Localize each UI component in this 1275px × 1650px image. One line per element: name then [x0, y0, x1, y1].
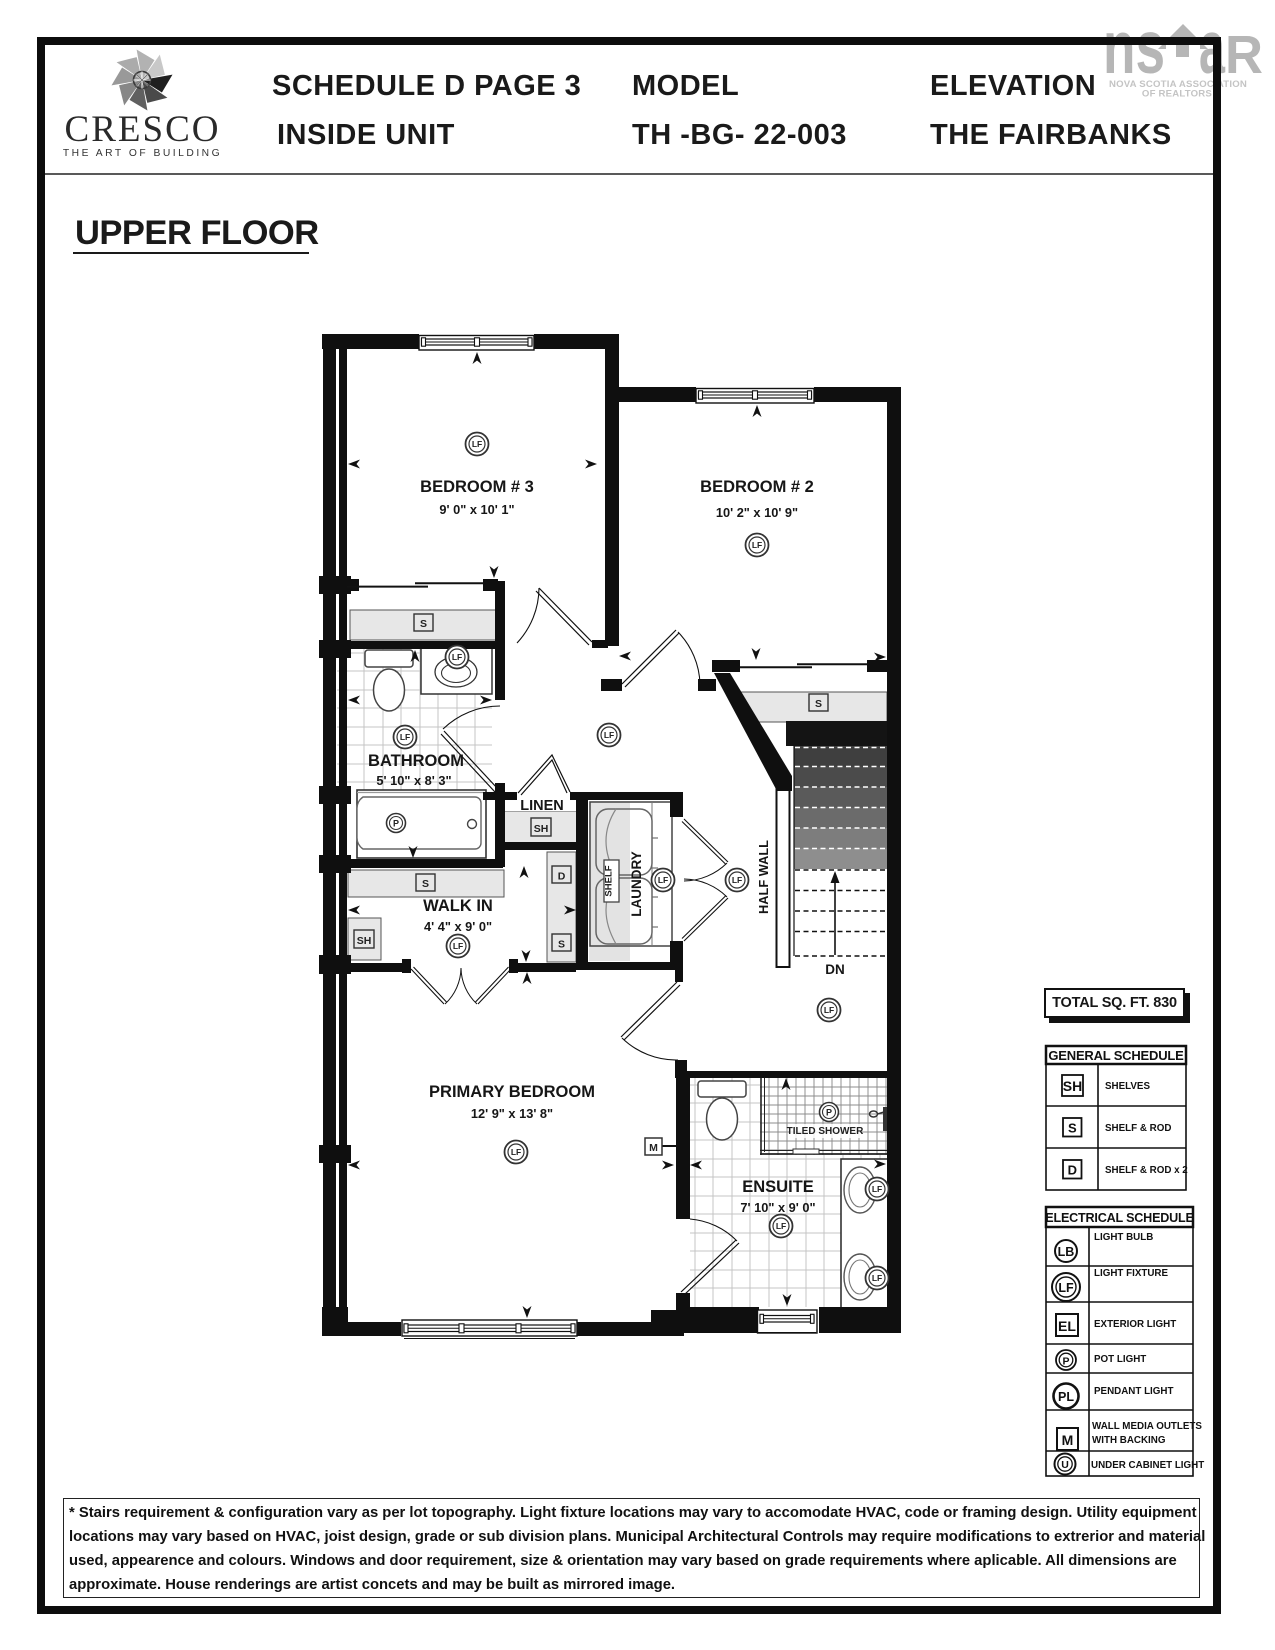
svg-text:SHELF & ROD x 2: SHELF & ROD x 2 — [1105, 1165, 1188, 1176]
svg-text:EXTERIOR LIGHT: EXTERIOR LIGHT — [1094, 1319, 1176, 1330]
svg-text:LB: LB — [1058, 1245, 1075, 1259]
svg-text:S: S — [1068, 1121, 1077, 1136]
svg-text:WALL MEDIA OUTLETS: WALL MEDIA OUTLETS — [1092, 1421, 1202, 1432]
svg-text:P: P — [1062, 1356, 1069, 1368]
svg-text:SH: SH — [1063, 1078, 1082, 1094]
svg-text:U: U — [1061, 1459, 1069, 1471]
svg-text:LF: LF — [1058, 1281, 1074, 1295]
svg-text:PENDANT LIGHT: PENDANT LIGHT — [1094, 1386, 1173, 1397]
svg-text:D: D — [1068, 1163, 1077, 1178]
svg-text:POT LIGHT: POT LIGHT — [1094, 1354, 1146, 1365]
svg-text:UNDER CABINET LIGHT: UNDER CABINET LIGHT — [1091, 1460, 1204, 1471]
svg-text:PL: PL — [1058, 1390, 1074, 1404]
svg-text:GENERAL SCHEDULE: GENERAL SCHEDULE — [1048, 1048, 1184, 1063]
svg-text:LIGHT FIXTURE: LIGHT FIXTURE — [1094, 1268, 1168, 1279]
svg-text:M: M — [1062, 1432, 1074, 1448]
svg-text:ELECTRICAL SCHEDULE: ELECTRICAL SCHEDULE — [1045, 1211, 1194, 1225]
svg-text:LIGHT BULB: LIGHT BULB — [1094, 1232, 1153, 1243]
svg-text:SHELVES: SHELVES — [1105, 1081, 1150, 1092]
svg-text:SHELF & ROD: SHELF & ROD — [1105, 1123, 1171, 1134]
svg-text:EL: EL — [1058, 1318, 1076, 1334]
svg-text:WITH BACKING: WITH BACKING — [1092, 1435, 1166, 1446]
